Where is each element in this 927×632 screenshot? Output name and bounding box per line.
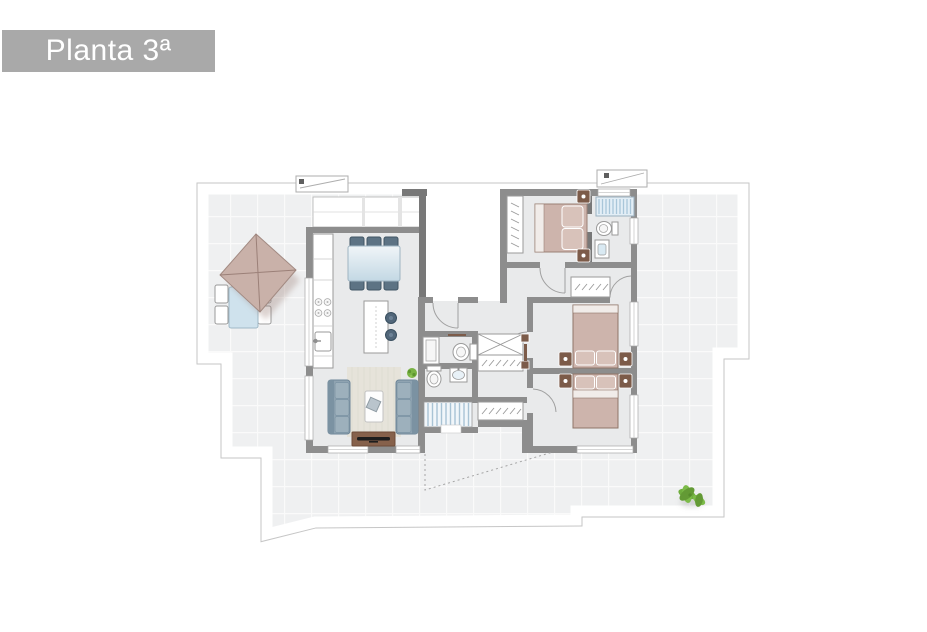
potted-plant <box>407 368 417 378</box>
floor-plan <box>0 0 927 632</box>
toilet <box>453 344 477 361</box>
pillow <box>576 351 595 365</box>
sofa-left <box>328 380 350 434</box>
shower <box>423 337 439 364</box>
pillow <box>576 376 595 389</box>
jamb <box>521 361 529 369</box>
kitchen-sink <box>313 332 331 351</box>
washbasin <box>450 367 467 382</box>
pillow <box>597 376 616 389</box>
outdoor-chair <box>215 306 228 324</box>
toilet <box>597 222 619 236</box>
sofa-right <box>396 380 418 434</box>
toilet <box>427 366 441 387</box>
tv-unit <box>352 432 395 446</box>
pillow <box>562 206 583 227</box>
jamb <box>524 344 527 361</box>
jamb <box>521 334 529 342</box>
wardrobe <box>478 355 523 371</box>
window <box>328 446 368 453</box>
window <box>630 302 638 346</box>
double-bed <box>573 374 618 428</box>
awning <box>296 176 348 192</box>
dining-table <box>348 246 400 281</box>
entry-landing <box>426 189 502 301</box>
outdoor-chair <box>215 285 228 303</box>
window <box>396 446 420 453</box>
double-bed <box>535 204 587 252</box>
window <box>630 395 638 438</box>
wardrobe <box>478 402 523 420</box>
window <box>630 218 638 244</box>
coffee-table <box>365 391 383 422</box>
wardrobe <box>507 196 523 253</box>
wardrobe <box>571 277 610 297</box>
kitchen-glazing <box>313 197 420 227</box>
shower <box>596 197 634 216</box>
pillow <box>562 229 583 250</box>
pillow <box>597 351 616 365</box>
window <box>305 278 313 366</box>
awning <box>597 170 647 187</box>
washbasin <box>595 240 609 258</box>
dining-set <box>348 237 400 290</box>
double-bed <box>573 305 618 368</box>
window <box>577 446 633 453</box>
window <box>305 376 313 440</box>
window <box>598 189 630 196</box>
linen-closet <box>478 334 523 355</box>
